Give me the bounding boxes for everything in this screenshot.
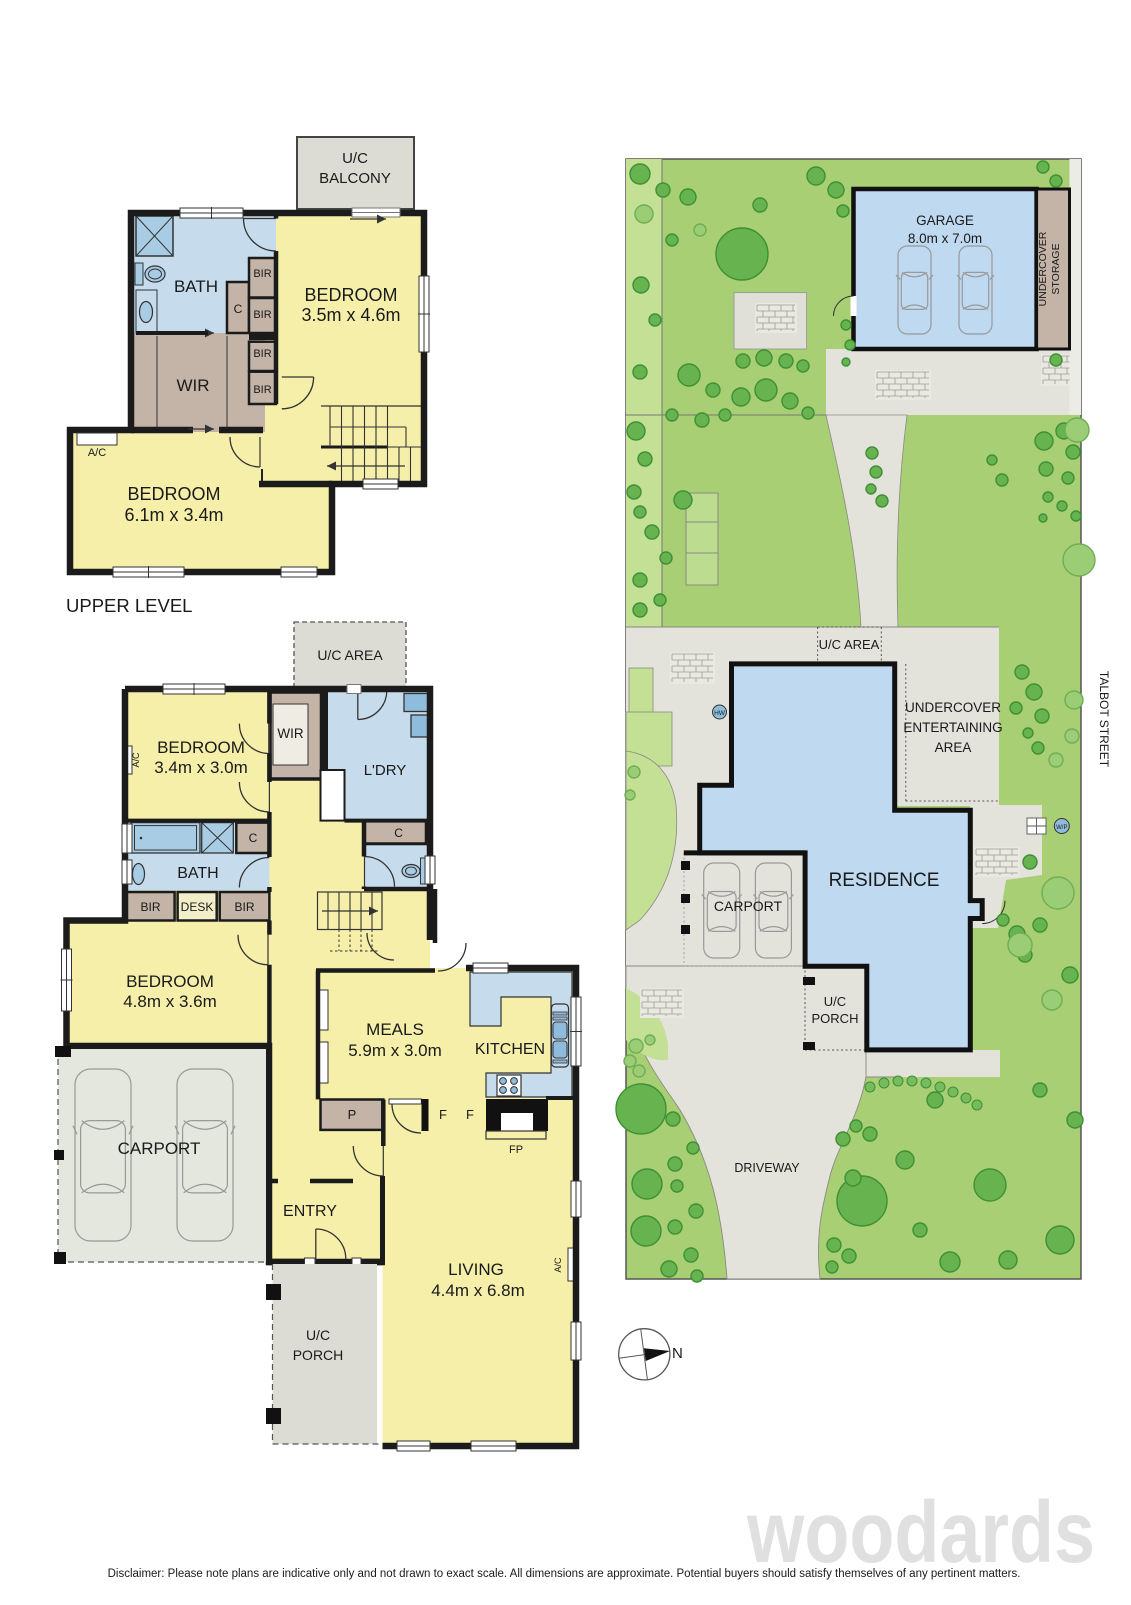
svg-text:3.4m x 3.0m: 3.4m x 3.0m xyxy=(154,758,248,777)
svg-text:A/C: A/C xyxy=(88,447,106,459)
svg-text:8.0m x 7.0m: 8.0m x 7.0m xyxy=(908,231,982,246)
svg-text:PORCH: PORCH xyxy=(812,1011,859,1026)
svg-text:6.1m x 3.4m: 6.1m x 3.4m xyxy=(124,505,223,525)
svg-text:CARPORT: CARPORT xyxy=(118,1139,201,1158)
svg-text:C: C xyxy=(234,302,243,316)
svg-text:U/C: U/C xyxy=(342,150,368,167)
svg-text:4.8m x 3.6m: 4.8m x 3.6m xyxy=(123,992,217,1011)
svg-text:W/P: W/P xyxy=(1056,825,1067,831)
svg-text:RESIDENCE: RESIDENCE xyxy=(829,870,940,891)
svg-text:U/C AREA: U/C AREA xyxy=(317,647,383,663)
svg-text:U/C: U/C xyxy=(824,994,846,1009)
svg-text:UPPER LEVEL: UPPER LEVEL xyxy=(66,595,192,616)
svg-text:BIR: BIR xyxy=(253,384,271,396)
svg-text:KITCHEN: KITCHEN xyxy=(475,1041,545,1058)
svg-text:BIR: BIR xyxy=(140,900,160,914)
svg-text:ENTERTAINING: ENTERTAINING xyxy=(903,720,1002,735)
svg-text:BATH: BATH xyxy=(177,865,218,882)
svg-text:WIR: WIR xyxy=(176,376,209,395)
svg-text:AREA: AREA xyxy=(935,740,972,755)
svg-text:N: N xyxy=(672,1345,683,1362)
svg-text:BATH: BATH xyxy=(174,277,218,296)
svg-text:BIR: BIR xyxy=(253,348,271,360)
svg-text:BEDROOM: BEDROOM xyxy=(126,972,214,991)
svg-text:STORAGE: STORAGE xyxy=(1050,243,1062,294)
svg-text:BEDROOM: BEDROOM xyxy=(304,285,397,305)
svg-text:BEDROOM: BEDROOM xyxy=(157,738,245,757)
svg-text:UNDERCOVER: UNDERCOVER xyxy=(905,700,1001,715)
svg-text:C: C xyxy=(249,831,258,845)
svg-text:UNDERCOVER: UNDERCOVER xyxy=(1037,231,1049,306)
svg-text:F: F xyxy=(466,1107,474,1122)
svg-text:woodards: woodards xyxy=(746,1484,1095,1581)
svg-text:U/C: U/C xyxy=(306,1327,330,1343)
svg-text:ENTRY: ENTRY xyxy=(283,1203,337,1220)
svg-text:BIR: BIR xyxy=(253,268,271,280)
svg-text:TALBOT STREET: TALBOT STREET xyxy=(1097,671,1111,768)
svg-text:BALCONY: BALCONY xyxy=(319,170,391,187)
svg-text:Disclaimer: Please note plans: Disclaimer: Please note plans are indica… xyxy=(108,1568,1021,1580)
svg-text:C: C xyxy=(394,826,403,840)
svg-text:MEALS: MEALS xyxy=(366,1020,424,1039)
svg-text:BIR: BIR xyxy=(253,309,271,321)
svg-text:BEDROOM: BEDROOM xyxy=(127,484,220,504)
svg-text:HW: HW xyxy=(714,710,726,717)
svg-text:FP: FP xyxy=(509,1144,523,1156)
svg-text:GARAGE: GARAGE xyxy=(916,213,974,228)
svg-text:U/C AREA: U/C AREA xyxy=(819,637,880,652)
svg-text:PORCH: PORCH xyxy=(293,1347,344,1363)
svg-text:P: P xyxy=(348,1107,357,1122)
svg-text:3.5m x 4.6m: 3.5m x 4.6m xyxy=(301,305,400,325)
svg-text:DRIVEWAY: DRIVEWAY xyxy=(734,1161,800,1175)
svg-text:4.4m x 6.8m: 4.4m x 6.8m xyxy=(431,1281,525,1300)
svg-text:LIVING: LIVING xyxy=(448,1260,504,1279)
svg-text:BIR: BIR xyxy=(234,900,254,914)
svg-text:5.9m x 3.0m: 5.9m x 3.0m xyxy=(348,1041,442,1060)
svg-text:CARPORT: CARPORT xyxy=(714,898,783,914)
svg-text:F: F xyxy=(439,1107,447,1122)
svg-text:A/C: A/C xyxy=(131,752,141,768)
svg-text:L'DRY: L'DRY xyxy=(364,762,407,779)
svg-text:A/C: A/C xyxy=(553,1257,563,1273)
svg-text:DESK: DESK xyxy=(181,900,214,914)
svg-text:WIR: WIR xyxy=(277,726,303,741)
